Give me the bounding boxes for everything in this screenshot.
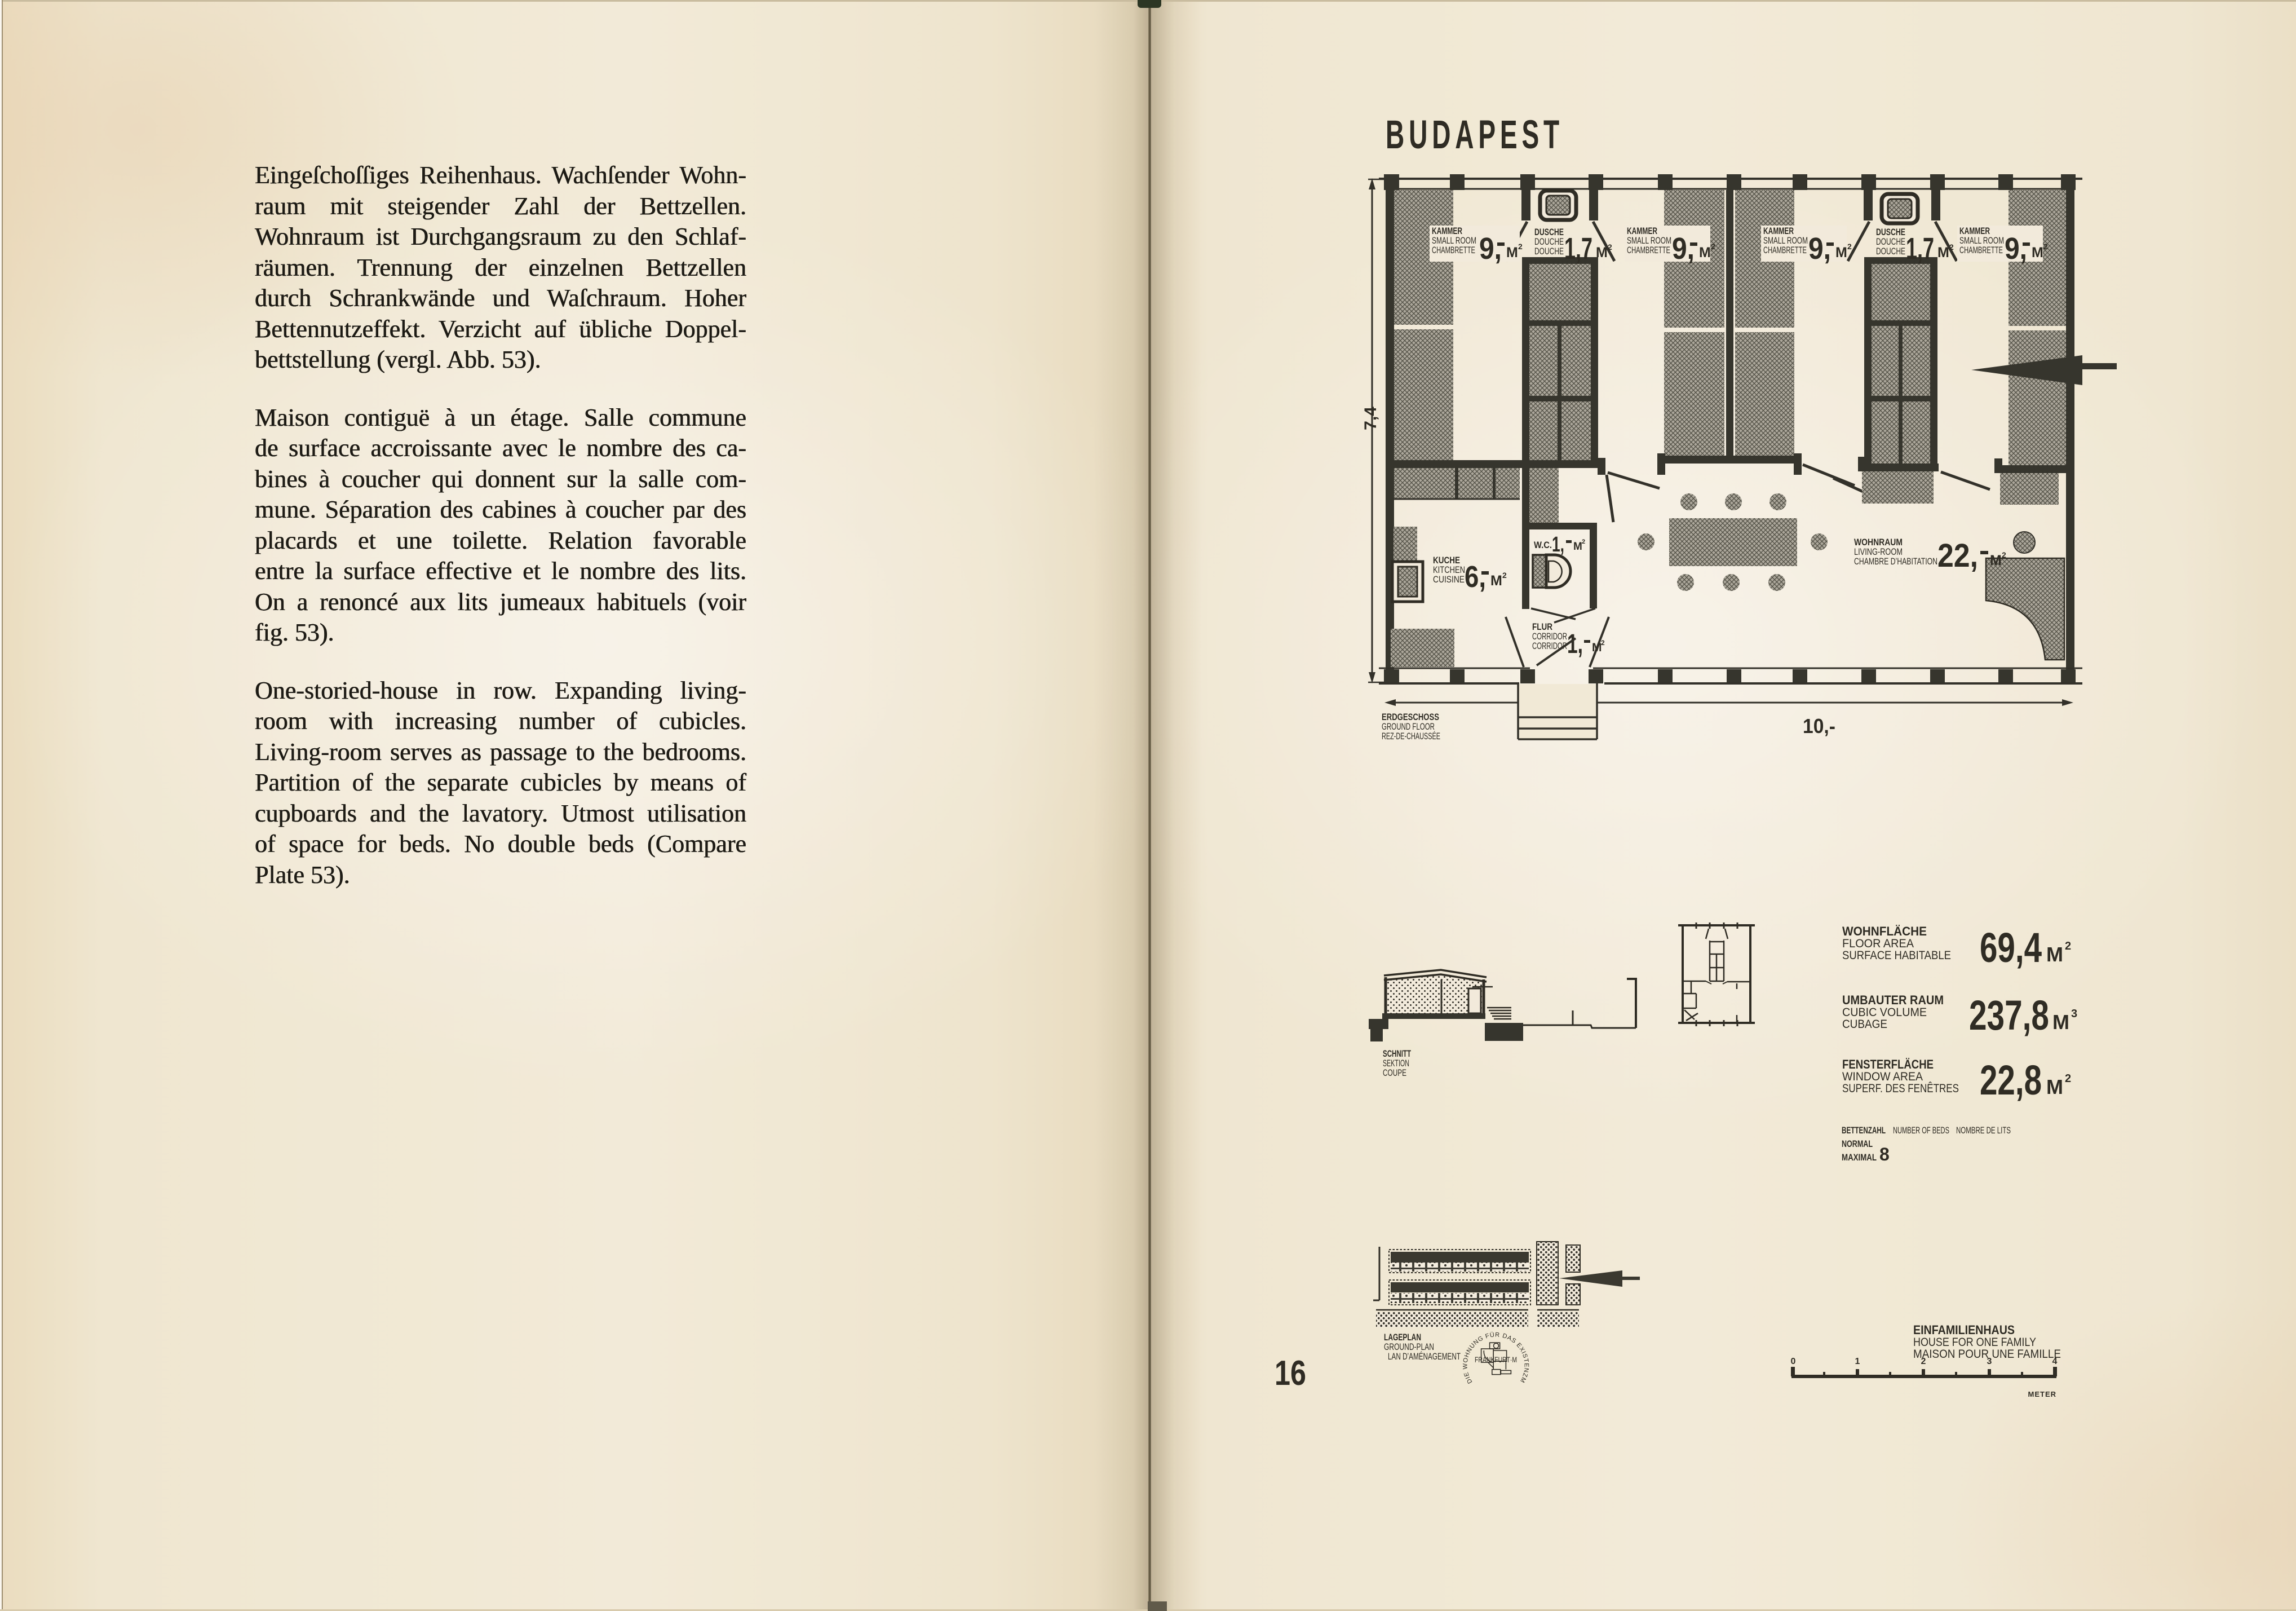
- svg-text:2: 2: [1711, 242, 1715, 251]
- svg-text:2: 2: [1582, 539, 1585, 545]
- svg-text:M: M: [2052, 1010, 2069, 1034]
- svg-text:16: 16: [1275, 1354, 1306, 1393]
- svg-text:2: 2: [2002, 550, 2006, 559]
- svg-text:M: M: [1506, 245, 1518, 261]
- svg-text:FLOOR AREA: FLOOR AREA: [1842, 937, 1914, 950]
- svg-text:2: 2: [1518, 242, 1523, 251]
- svg-text:2: 2: [2065, 1072, 2071, 1085]
- svg-text:CUBAGE: CUBAGE: [1842, 1018, 1887, 1031]
- svg-text:CHAMBRETTE: CHAMBRETTE: [1763, 245, 1807, 255]
- svg-text:LAGEPLAN: LAGEPLAN: [1384, 1332, 1421, 1343]
- svg-text:0: 0: [1791, 1357, 1796, 1366]
- svg-text:SCHNITT: SCHNITT: [1383, 1048, 1411, 1059]
- svg-text:M: M: [1573, 541, 1582, 553]
- svg-text:9,: 9,: [1808, 232, 1831, 266]
- svg-text:M: M: [1596, 245, 1608, 261]
- svg-text:REZ-DE-CHAUSSÉE: REZ-DE-CHAUSSÉE: [1382, 731, 1440, 741]
- svg-text:3: 3: [2071, 1008, 2077, 1020]
- svg-text:NOMBRE DE LITS: NOMBRE DE LITS: [1956, 1126, 2011, 1136]
- svg-text:FENSTERFLÄCHE: FENSTERFLÄCHE: [1842, 1057, 1934, 1071]
- svg-text:6,: 6,: [1465, 560, 1486, 594]
- svg-text:EINFAMILIENHAUS: EINFAMILIENHAUS: [1913, 1323, 2015, 1337]
- svg-text:LAN D’AMÉNAGEMENT: LAN D’AMÉNAGEMENT: [1388, 1351, 1461, 1362]
- svg-text:M: M: [2046, 943, 2063, 966]
- svg-text:M: M: [2032, 245, 2043, 261]
- svg-text:DOUCHE: DOUCHE: [1876, 246, 1905, 257]
- svg-text:22,8: 22,8: [1980, 1057, 2042, 1104]
- svg-text:ERDGESCHOSS: ERDGESCHOSS: [1382, 712, 1439, 722]
- svg-text:SMALL ROOM: SMALL ROOM: [1763, 236, 1808, 246]
- svg-text:DIE WOHNUNG FÜR DAS EXISTENZMI: DIE WOHNUNG FÜR DAS EXISTENZMINIMUM ·: [1151, 0, 1530, 1385]
- svg-text:CUBIC VOLUME: CUBIC VOLUME: [1842, 1006, 1927, 1019]
- svg-text:2: 2: [2065, 940, 2071, 952]
- svg-text:LIVING-ROOM: LIVING-ROOM: [1854, 547, 1903, 557]
- svg-text:WINDOW AREA: WINDOW AREA: [1842, 1070, 1923, 1083]
- svg-text:SEKTION: SEKTION: [1383, 1058, 1409, 1069]
- svg-text:2: 2: [1601, 639, 1605, 647]
- svg-text:CHAMBRETTE: CHAMBRETTE: [1432, 245, 1475, 255]
- svg-text:SURFACE HABITABLE: SURFACE HABITABLE: [1842, 949, 1951, 962]
- svg-text:M: M: [1990, 553, 2002, 568]
- svg-text:CORRIDOR: CORRIDOR: [1532, 632, 1567, 642]
- svg-text:1,: 1,: [1567, 629, 1583, 659]
- svg-text:1,: 1,: [1552, 533, 1564, 557]
- svg-text:UMBAUTER RAUM: UMBAUTER RAUM: [1842, 993, 1944, 1007]
- svg-text:KAMMER: KAMMER: [1763, 226, 1794, 236]
- svg-text:SMALL ROOM: SMALL ROOM: [1959, 236, 2004, 246]
- svg-text:KAMMER: KAMMER: [1432, 226, 1462, 236]
- svg-text:FLUR: FLUR: [1532, 621, 1552, 632]
- svg-text:9,: 9,: [1672, 232, 1695, 266]
- svg-text:WOHNFLÄCHE: WOHNFLÄCHE: [1842, 924, 1927, 938]
- svg-text:M: M: [1835, 245, 1847, 261]
- svg-text:KAMMER: KAMMER: [1627, 226, 1657, 236]
- svg-text:8: 8: [1879, 1144, 1890, 1164]
- svg-text:NORMAL: NORMAL: [1842, 1139, 1873, 1149]
- svg-text:M: M: [1937, 245, 1949, 261]
- svg-text:4: 4: [2052, 1357, 2058, 1366]
- svg-text:2: 2: [1921, 1357, 1926, 1366]
- svg-text:GROUND FLOOR: GROUND FLOOR: [1382, 722, 1435, 732]
- svg-text:69,4: 69,4: [1980, 924, 2042, 971]
- svg-text:MAXIMAL: MAXIMAL: [1842, 1153, 1877, 1163]
- svg-text:COUPE: COUPE: [1383, 1068, 1406, 1078]
- svg-text:M: M: [1699, 245, 1711, 261]
- svg-text:DOUCHE: DOUCHE: [1534, 246, 1564, 257]
- svg-text:SUPERF. DES FENÊTRES: SUPERF. DES FENÊTRES: [1842, 1082, 1959, 1095]
- svg-text:SMALL ROOM: SMALL ROOM: [1432, 236, 1476, 246]
- svg-text:CHAMBRE D’HABITATION: CHAMBRE D’HABITATION: [1854, 557, 1937, 567]
- svg-text:KITCHEN: KITCHEN: [1433, 565, 1465, 575]
- svg-text:2: 2: [1949, 242, 1954, 251]
- svg-text:NUMBER OF BEDS: NUMBER OF BEDS: [1893, 1126, 1949, 1136]
- svg-text:2: 2: [2043, 242, 2048, 251]
- svg-text:HOUSE FOR ONE FAMILY: HOUSE FOR ONE FAMILY: [1913, 1336, 2036, 1349]
- svg-text:1,7: 1,7: [1564, 232, 1592, 266]
- svg-text:SMALL ROOM: SMALL ROOM: [1627, 236, 1671, 246]
- svg-text:DOUCHE: DOUCHE: [1876, 237, 1905, 247]
- svg-text:DUSCHE: DUSCHE: [1534, 227, 1564, 237]
- svg-text:1: 1: [1855, 1357, 1860, 1366]
- svg-text:3: 3: [1987, 1357, 1992, 1366]
- svg-text:1,7: 1,7: [1906, 232, 1934, 266]
- svg-text:2: 2: [1847, 242, 1852, 251]
- svg-text:9,: 9,: [2005, 232, 2027, 266]
- svg-text:2: 2: [1608, 242, 1612, 251]
- svg-text:M: M: [1490, 573, 1502, 589]
- svg-text:W.C.: W.C.: [1534, 540, 1552, 550]
- svg-text:GROUND-PLAN: GROUND-PLAN: [1384, 1342, 1434, 1352]
- svg-text:METER: METER: [2028, 1390, 2057, 1398]
- svg-text:CUISINE: CUISINE: [1433, 575, 1465, 585]
- svg-text:CORRIDOR: CORRIDOR: [1532, 641, 1567, 651]
- svg-text:BETTENZAHL: BETTENZAHL: [1842, 1126, 1886, 1136]
- svg-text:DOUCHE: DOUCHE: [1534, 237, 1564, 247]
- svg-text:KUCHE: KUCHE: [1433, 555, 1460, 566]
- svg-text:WOHNRAUM: WOHNRAUM: [1854, 537, 1903, 548]
- svg-text:M: M: [1592, 641, 1602, 654]
- svg-text:KAMMER: KAMMER: [1959, 226, 1990, 236]
- svg-text:DUSCHE: DUSCHE: [1876, 227, 1905, 237]
- svg-text:22,: 22,: [1937, 537, 1978, 574]
- svg-text:CHAMBRETTE: CHAMBRETTE: [1627, 245, 1670, 255]
- svg-text:M: M: [2046, 1075, 2063, 1098]
- svg-text:CHAMBRETTE: CHAMBRETTE: [1959, 245, 2003, 255]
- svg-text:237,8: 237,8: [1969, 992, 2049, 1039]
- svg-text:2: 2: [1502, 571, 1507, 580]
- svg-text:9,: 9,: [1479, 232, 1502, 266]
